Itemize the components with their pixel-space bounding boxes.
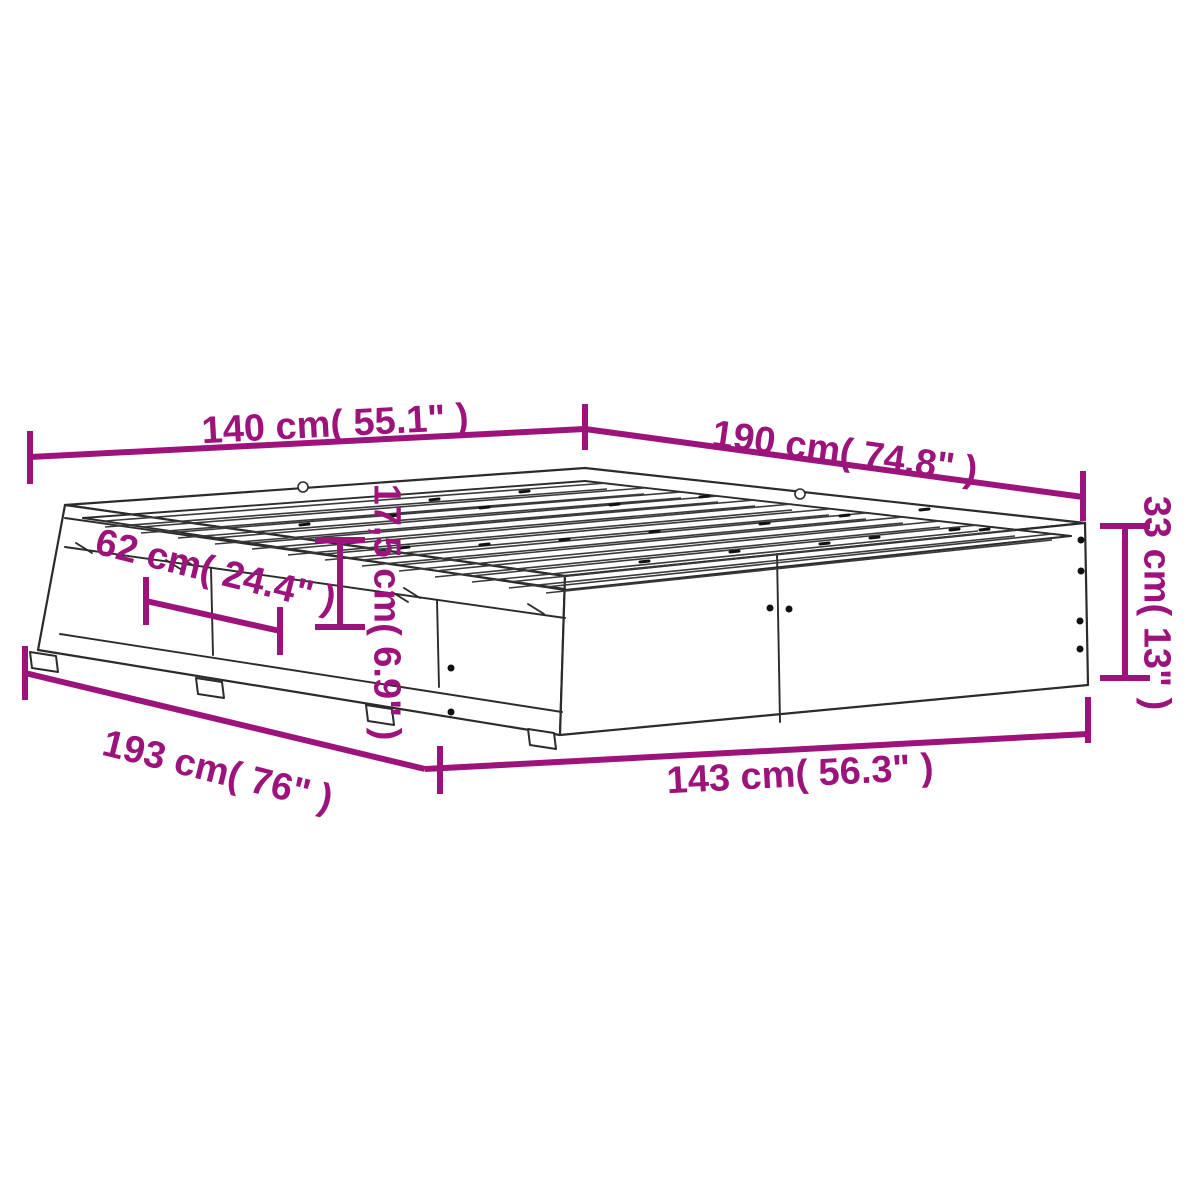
dimension-diagram-page: 140 cm( 55.1" )190 cm( 74.8" )62 cm( 24.…	[0, 0, 1200, 1200]
slat-screw-mark	[820, 543, 829, 544]
bed-foot	[30, 652, 58, 672]
slat-screw-mark	[520, 491, 529, 492]
slat-screw-mark	[640, 561, 649, 562]
slat-screw-mark	[610, 504, 619, 505]
screw-dot	[1078, 537, 1085, 544]
bed-foot	[528, 729, 556, 749]
screw-dot	[448, 709, 455, 716]
screw-dot	[767, 605, 774, 612]
slat-screw-mark	[480, 507, 489, 508]
bed-foot	[196, 678, 224, 698]
slat-screw-mark	[760, 523, 769, 524]
dimension-label-side-height: 33 cm( 13" )	[1136, 496, 1178, 710]
screw-dot	[1078, 568, 1085, 575]
screw-dot	[1077, 618, 1084, 625]
bed-frame-dimension-diagram: 140 cm( 55.1" )190 cm( 74.8" )62 cm( 24.…	[0, 0, 1200, 1200]
slat-screw-mark	[300, 524, 309, 525]
slat-screw-mark	[650, 531, 659, 532]
slat-screw-mark	[920, 509, 929, 510]
slat-screw-mark	[560, 539, 569, 540]
slat-screw-mark	[840, 515, 849, 516]
dimension-label-length-top: 190 cm( 74.8" )	[710, 413, 981, 492]
screw-dot	[448, 665, 455, 672]
slat-screw-mark	[870, 537, 879, 538]
slat-screw-mark	[980, 529, 989, 530]
dimension-label-drawer-height: 17,5 cm( 6.9" )	[366, 484, 408, 741]
screw-dot	[786, 606, 793, 613]
slat-screw-mark	[480, 544, 489, 545]
rail-hole	[298, 482, 308, 492]
slat-screw-mark	[700, 496, 709, 497]
dimension-label-width-top: 140 cm( 55.1" )	[201, 396, 470, 452]
screw-dot	[1077, 646, 1084, 653]
rail-hole	[795, 489, 805, 499]
slat-screw-mark	[730, 551, 739, 552]
slat-screw-mark	[950, 529, 959, 530]
slat-screw-mark	[430, 499, 439, 500]
